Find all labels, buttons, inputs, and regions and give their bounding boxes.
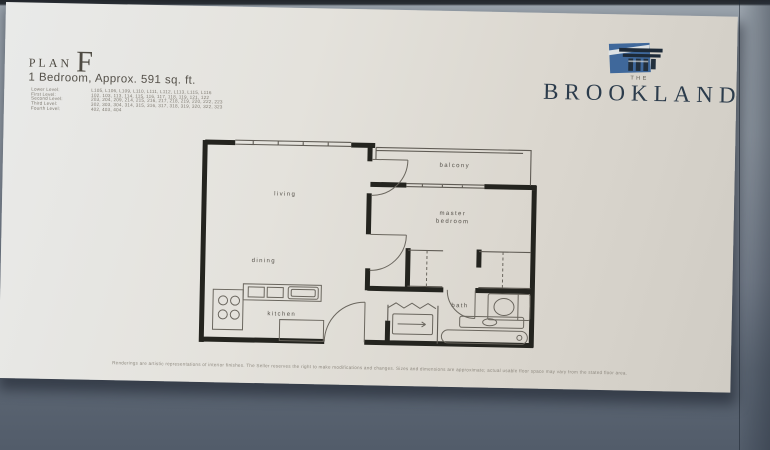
kitchen-sink-basin bbox=[248, 287, 264, 297]
stove-burner bbox=[230, 310, 239, 319]
level-label: Fourth Level: bbox=[31, 106, 91, 112]
stove-burner bbox=[230, 296, 239, 305]
walls-thick bbox=[201, 140, 537, 349]
plan-word: PLAN bbox=[29, 55, 73, 70]
bedroom-window bbox=[406, 184, 484, 189]
fridge bbox=[279, 320, 323, 342]
kitchen-appliance-inner bbox=[291, 289, 315, 296]
room-label-dining: dining bbox=[252, 258, 277, 264]
kitchen-appliance bbox=[288, 287, 318, 300]
bedroom-door bbox=[370, 234, 407, 271]
brookland-building-icon bbox=[603, 40, 670, 75]
floor-plan-poster: PLANF 1 Bedroom, Approx. 591 sq. ft. Low… bbox=[0, 2, 738, 393]
washer-dryer-arrow bbox=[398, 321, 426, 327]
kitchen-sink-basin bbox=[267, 287, 283, 297]
plan-subtitle: 1 Bedroom, Approx. 591 sq. ft. bbox=[28, 71, 196, 86]
tub-drain bbox=[517, 335, 522, 340]
brand-name: BROOKLAND bbox=[526, 78, 752, 109]
unit-levels-list: Lower Level: L105, L106, L109, L110, L11… bbox=[31, 88, 223, 115]
room-label-master: master bbox=[439, 211, 466, 218]
toilet-tank-line bbox=[518, 294, 519, 320]
closet-zigzag bbox=[388, 303, 436, 309]
range-counter bbox=[212, 289, 243, 330]
stove-burner bbox=[218, 310, 227, 319]
toilet-bowl bbox=[494, 298, 514, 315]
level-units: 402, 403, 404 bbox=[91, 108, 122, 113]
room-label-bedroom: bedroom bbox=[436, 219, 470, 226]
stove-burner bbox=[218, 296, 227, 305]
room-label-living: living bbox=[274, 191, 296, 197]
floor-plan-drawing: living dining kitchen master bedroom bat… bbox=[189, 134, 543, 356]
poster-disclaimer: Renderings are artistic representations … bbox=[99, 360, 641, 376]
closet-walls bbox=[407, 250, 531, 288]
room-label-kitchen: kitchen bbox=[267, 311, 296, 318]
room-label-balcony: balcony bbox=[439, 163, 470, 170]
balcony-door bbox=[371, 159, 408, 196]
bath-fixtures bbox=[441, 293, 530, 345]
entry-door bbox=[324, 301, 365, 342]
closet-rods bbox=[426, 251, 503, 289]
living-window bbox=[235, 140, 351, 146]
photo-frame: PLANF 1 Bedroom, Approx. 591 sq. ft. Low… bbox=[0, 0, 770, 450]
room-label-bath: bath bbox=[451, 303, 468, 309]
laundry-closet bbox=[387, 303, 436, 335]
brand-logo-block: THE BROOKLAND bbox=[526, 36, 753, 109]
